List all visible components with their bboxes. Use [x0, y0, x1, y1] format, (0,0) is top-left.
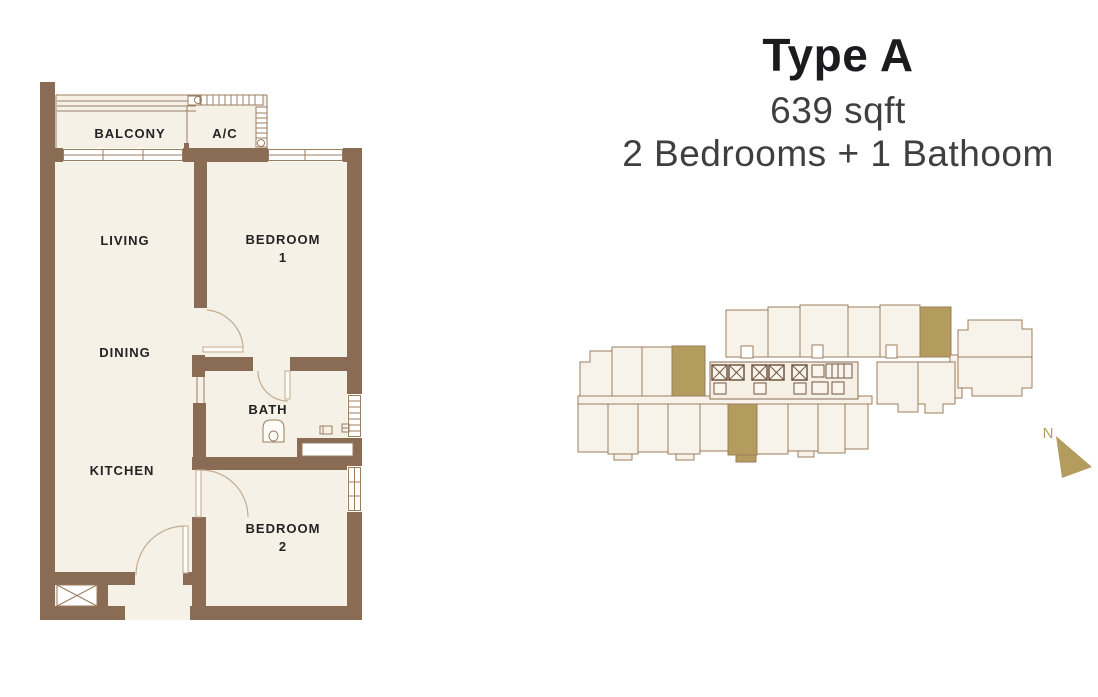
- key-plan-bottom-units: [578, 404, 868, 462]
- shaft-icon: [57, 585, 97, 606]
- balcony-label: BALCONY: [94, 126, 165, 141]
- floor-plan: BALCONY A/C LIVING BEDROOM 1 DINING BATH…: [40, 82, 362, 620]
- plan-type-title: Type A: [538, 30, 1098, 81]
- living-label: LIVING: [100, 233, 149, 248]
- plan-title-block: Type A 639 sqft 2 Bedrooms + 1 Bathoom: [538, 30, 1098, 175]
- lift-icon: [769, 365, 784, 380]
- north-arrow: N: [1043, 425, 1092, 478]
- lift-icon: [729, 365, 744, 380]
- bedroom1-window: [268, 148, 343, 162]
- highlighted-unit-1: [672, 346, 705, 400]
- highlighted-unit-3: [728, 404, 757, 455]
- door-stop: [184, 143, 189, 149]
- lift-icon: [792, 365, 807, 380]
- bedroom2-label: BEDROOM: [246, 521, 321, 536]
- highlighted-unit-2: [920, 307, 951, 357]
- north-label: N: [1043, 425, 1054, 442]
- elevator-core: [710, 362, 858, 399]
- bedroom1-label: BEDROOM: [246, 232, 321, 247]
- bath-label: BATH: [248, 402, 287, 417]
- living-window: [63, 148, 183, 162]
- kitchen-label: KITCHEN: [90, 463, 155, 478]
- bedroom2-number: 2: [279, 539, 287, 554]
- floor-plan-page: BALCONY A/C LIVING BEDROOM 1 DINING BATH…: [0, 0, 1098, 697]
- plan-config-text: 2 Bedrooms + 1 Bathoom: [538, 134, 1098, 175]
- key-plan: [578, 305, 1032, 462]
- dining-label: DINING: [99, 345, 151, 360]
- lift-icon: [752, 365, 767, 380]
- key-plan-upper-left-units: [580, 346, 705, 400]
- bedroom1-number: 1: [279, 250, 287, 265]
- bedroom2-window: [347, 466, 362, 512]
- key-plan-upper-middle-units: [726, 305, 951, 358]
- ac-label: A/C: [212, 126, 237, 141]
- plan-area-text: 639 sqft: [538, 91, 1098, 132]
- north-arrow-icon: [1056, 436, 1092, 478]
- lift-icon: [712, 365, 727, 380]
- vanity-counter: [302, 443, 353, 456]
- toilet-icon: [263, 420, 284, 442]
